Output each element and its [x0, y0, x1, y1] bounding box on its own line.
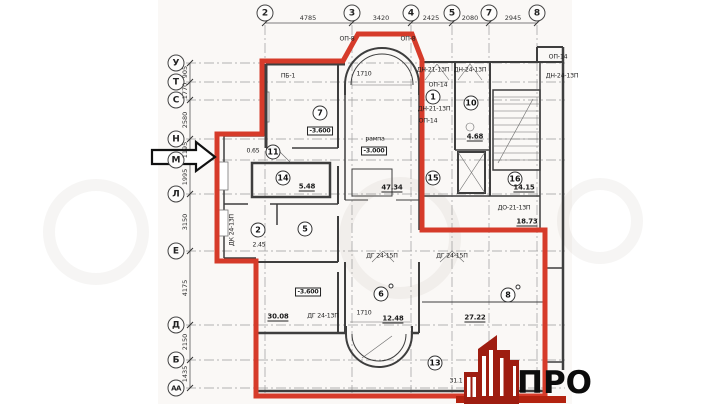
left-dimension: 1770: [181, 83, 189, 100]
logo-text: ПРО: [517, 368, 592, 399]
room-number-1: 1: [426, 90, 441, 105]
plan-label: -3.000: [361, 147, 387, 156]
plan-label: 1710: [357, 310, 372, 317]
plan-label: ДН-24-13П: [454, 67, 487, 74]
room-number-8: 8: [501, 288, 516, 303]
left-dimension: 1195: [181, 142, 189, 159]
room-number-5: 5: [298, 222, 313, 237]
floorplan-screenshot: 234578УТСНМЛЕДБАА47853420242520802945905…: [0, 0, 720, 404]
room-number-2: 2: [251, 223, 266, 238]
plan-label: ОП-14: [429, 82, 448, 89]
plan-label: 18.73: [516, 218, 537, 227]
plan-label: ПБ-1: [281, 73, 295, 80]
axis-circle-top-7: 7: [481, 5, 498, 22]
left-dimension: 905: [181, 66, 189, 78]
plan-label: ОП-8: [340, 36, 355, 43]
axis-circle-left-Е: Е: [168, 243, 185, 260]
room-number-11: 11: [266, 145, 281, 160]
plan-label: рампа: [365, 136, 384, 143]
plan-label: 30.08: [267, 313, 288, 322]
axis-circle-left-Д: Д: [168, 317, 185, 334]
plan-label: 2.45: [253, 242, 266, 249]
left-dimension: 3150: [181, 214, 189, 231]
room-number-6: 6: [374, 287, 389, 302]
plan-label: ОП-14: [549, 54, 568, 61]
left-dimension: 4175: [181, 280, 189, 297]
plan-label: ДН-24-13П: [546, 73, 579, 80]
plan-label: 47.34: [381, 184, 402, 193]
top-dimension: 2945: [505, 14, 522, 22]
plan-label: ОП-14: [419, 118, 438, 125]
axis-circle-top-8: 8: [529, 5, 546, 22]
plan-label: ДН-21-13П: [418, 106, 451, 113]
plan-label: -3.600: [295, 288, 321, 297]
plan-text-overlay: 234578УТСНМЛЕДБАА47853420242520802945905…: [0, 0, 720, 404]
top-dimension: 2425: [423, 14, 440, 22]
room-number-7: 7: [313, 106, 328, 121]
plan-label: ДГ 24-15П: [436, 253, 467, 260]
axis-circle-top-4: 4: [403, 5, 420, 22]
plan-label: -3.600: [307, 127, 333, 136]
plan-label: ДО-21-13П: [498, 205, 531, 212]
room-number-15: 15: [426, 171, 441, 186]
left-dimension: 1995: [181, 169, 189, 186]
plan-label: ДН-21-13П: [417, 67, 450, 74]
left-dimension: 2150: [181, 334, 189, 351]
plan-label: 5.48: [299, 183, 315, 192]
plan-label: ОП-8: [401, 36, 416, 43]
room-number-10: 10: [464, 96, 479, 111]
plan-label: 14.15: [513, 184, 534, 193]
axis-circle-left-Л: Л: [168, 186, 185, 203]
top-dimension: 4785: [300, 14, 317, 22]
axis-circle-top-3: 3: [344, 5, 361, 22]
left-dimension: 2580: [181, 112, 189, 129]
plan-label: 31.1: [450, 378, 463, 385]
axis-circle-top-5: 5: [444, 5, 461, 22]
axis-circle-top-2: 2: [257, 5, 274, 22]
plan-label: ДК 24-13П: [229, 214, 236, 246]
plan-label: ДГ 24-15П: [366, 253, 397, 260]
room-number-13: 13: [428, 356, 443, 371]
room-number-14: 14: [276, 171, 291, 186]
left-dimension: 1435: [181, 366, 189, 383]
room-number-superscript: [516, 285, 521, 290]
plan-label: 12.48: [382, 315, 403, 324]
plan-label: 4.68: [467, 133, 483, 142]
plan-label: 1710: [357, 71, 372, 78]
plan-label: ДГ 24-13П: [307, 313, 338, 320]
room-number-superscript: [389, 284, 394, 289]
top-dimension: 3420: [373, 14, 390, 22]
plan-label: 0.65: [247, 148, 260, 155]
top-dimension: 2080: [462, 14, 479, 22]
plan-label: 27.22: [464, 314, 485, 323]
